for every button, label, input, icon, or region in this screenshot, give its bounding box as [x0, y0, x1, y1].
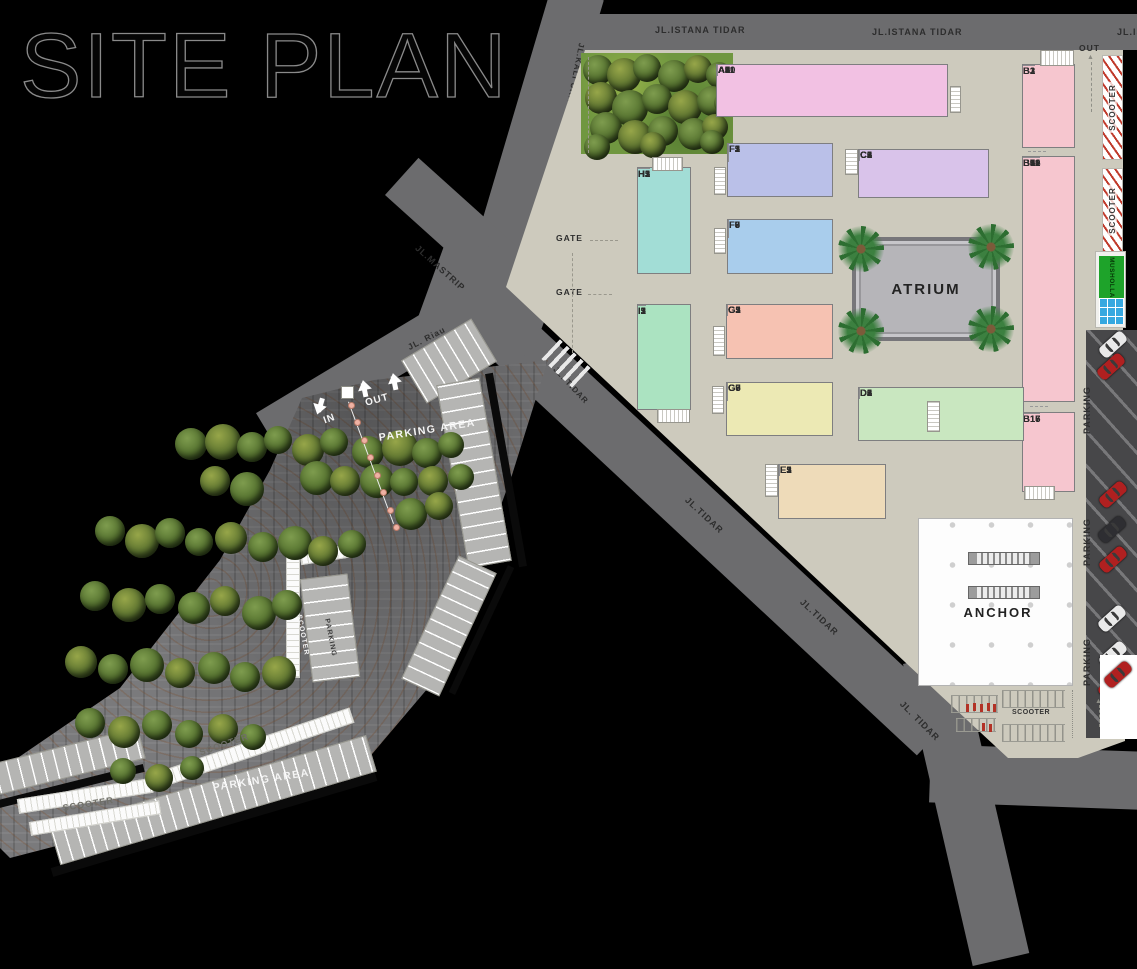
utility-box — [657, 409, 690, 423]
path-dot — [348, 402, 355, 409]
utility-box — [1024, 486, 1055, 500]
tree — [278, 526, 312, 560]
site-plan-canvas: JL.ISTANA TIDAR JL.ISTANA TIDAR JL.IS JL… — [0, 0, 1137, 969]
scooter-rack-label: SCOOTER — [1012, 709, 1050, 716]
path-dot — [393, 524, 400, 531]
palm-tree — [968, 224, 1014, 270]
gate-dash-2 — [588, 294, 612, 295]
tree — [215, 522, 247, 554]
path-dot — [354, 419, 361, 426]
tree — [180, 756, 204, 780]
utility-box — [712, 386, 724, 414]
parking-side-label: PARKING — [1082, 386, 1092, 434]
tree — [448, 464, 474, 490]
toilet-block — [1099, 298, 1124, 324]
block-a: A1A2A3A5A6A7A8A9A10A11 — [716, 64, 948, 117]
unit-cell: F5 — [728, 144, 740, 162]
block-g-bot: G6G7G8G9 — [726, 382, 833, 436]
anchor-label: ANCHOR — [938, 605, 1058, 620]
scooter-symbol — [993, 704, 996, 712]
utility-box — [1040, 50, 1074, 66]
tree — [110, 758, 136, 784]
tree — [230, 472, 264, 506]
tree — [175, 720, 203, 748]
driveway-dash-1 — [588, 57, 589, 153]
tree — [165, 658, 195, 688]
tree — [65, 646, 97, 678]
parking-side-label: PARKING — [1082, 638, 1092, 686]
block-b-top: B1B2B3 — [1022, 64, 1075, 148]
palm-tree — [968, 306, 1014, 352]
escalator — [968, 552, 1040, 565]
tree — [205, 424, 241, 460]
tree — [330, 466, 360, 496]
scooter-symbol — [982, 723, 985, 731]
palm-tree — [838, 226, 884, 272]
block-c: C1C2C3C5C6 — [858, 149, 989, 198]
tree — [125, 524, 159, 558]
tree — [248, 532, 278, 562]
unit-cell: B14 — [1023, 157, 1040, 169]
utility-box — [714, 167, 726, 195]
tree — [98, 654, 128, 684]
unit-cell: A11 — [717, 65, 735, 76]
path-dot — [361, 437, 368, 444]
escalator — [968, 586, 1040, 599]
anchor-store — [918, 518, 1073, 686]
block-b-mid: B5B6B7B8B9B10B11B12B14 — [1022, 156, 1075, 402]
unit-cell: C6 — [859, 150, 872, 161]
utility-box — [714, 228, 726, 254]
block-e: E1E2E3E5 — [778, 464, 886, 519]
unit-cell: G5 — [727, 305, 741, 316]
tree — [75, 708, 105, 738]
tree — [178, 592, 210, 624]
utility-box — [652, 157, 683, 171]
gate-label-1: GATE — [556, 233, 583, 243]
block-f-bot: F6F7F8F9 — [727, 219, 833, 274]
tree — [237, 432, 267, 462]
tree — [230, 662, 260, 692]
tree — [390, 468, 418, 496]
tree — [640, 132, 666, 158]
tree — [210, 586, 240, 616]
tree — [145, 764, 173, 792]
block-f-top: F1F2F3F5 — [727, 143, 833, 197]
utility-box — [765, 464, 778, 497]
tree — [300, 461, 334, 495]
tree — [142, 710, 172, 740]
tree — [242, 596, 276, 630]
scooter-strip-1: SCOOTER — [1102, 55, 1123, 160]
tree — [145, 584, 175, 614]
musholla-label: MUSHOLLA — [1108, 257, 1115, 298]
tree — [112, 588, 146, 622]
scooter-symbol — [989, 724, 992, 732]
scooter-symbol — [987, 703, 990, 711]
unit-cell: H5 — [638, 168, 650, 180]
tree — [264, 426, 292, 454]
block-h: H1H2H3H5 — [637, 167, 691, 274]
scooter-strip-label: SCOOTER — [1108, 82, 1117, 133]
block-b-bot: B15B16B17 — [1022, 412, 1075, 492]
utility-box — [845, 149, 858, 175]
tree — [338, 530, 366, 558]
tree — [155, 518, 185, 548]
road-label-istana-3: JL.IS — [1117, 27, 1137, 37]
road-label-istana-2: JL.ISTANA TIDAR — [872, 27, 963, 37]
b-gap-dash-2 — [1030, 406, 1048, 407]
atrium-label: ATRIUM — [891, 281, 960, 298]
tree — [633, 54, 661, 82]
scooter-strip-2: SCOOTER — [1102, 168, 1123, 252]
scooter-symbol — [966, 704, 969, 712]
tree — [185, 528, 213, 556]
tree — [262, 656, 296, 690]
tree — [200, 466, 230, 496]
tree — [175, 428, 207, 460]
path-dot — [367, 454, 374, 461]
musholla: MUSHOLLA — [1099, 256, 1124, 298]
scooter-symbol — [973, 703, 976, 711]
page-title: SITE PLAN — [20, 14, 508, 119]
scooter-rack-right — [1002, 690, 1065, 708]
tree — [108, 716, 140, 748]
entry-gate — [341, 386, 354, 399]
tree — [320, 428, 348, 456]
block-i: I1I2I3I5 — [637, 304, 691, 410]
out-label-top: OUT — [1079, 43, 1100, 53]
gate-label-2: GATE — [556, 287, 583, 297]
tree — [418, 466, 448, 496]
unit-cell: G9 — [727, 383, 741, 401]
unit-cell: E5 — [779, 465, 792, 476]
b-gap-dash-1 — [1028, 151, 1046, 152]
unit-cell: I5 — [638, 305, 646, 317]
gate-dash-1 — [590, 240, 618, 241]
unit-cell: B3 — [1023, 65, 1035, 77]
scooter-rack-right — [1002, 724, 1065, 742]
utility-box — [713, 326, 725, 356]
path-dot — [374, 472, 381, 479]
tree — [395, 498, 427, 530]
driveway-dash-2 — [572, 253, 573, 353]
scooter-symbol — [980, 704, 983, 712]
path-dot — [387, 507, 394, 514]
block-g-top: G1G2G3G5 — [726, 304, 833, 359]
apron-dotted-line — [1072, 690, 1073, 738]
tree — [700, 130, 724, 154]
tree — [438, 432, 464, 458]
out-arrow-head: ▲ — [1087, 54, 1094, 61]
tree — [95, 516, 125, 546]
scooter-strip-label: SCOOTER — [1108, 185, 1117, 236]
tree — [308, 536, 338, 566]
utility-box — [950, 86, 961, 113]
unit-cell: D6 — [859, 388, 872, 399]
palm-tree — [838, 308, 884, 354]
parking-side-label: PARKING — [1082, 518, 1092, 566]
road-label-istana-1: JL.ISTANA TIDAR — [655, 25, 746, 35]
utility-box — [927, 401, 940, 432]
out-arrow-dash — [1091, 62, 1092, 112]
tree — [130, 648, 164, 682]
unit-cell: B17 — [1023, 413, 1040, 425]
block-d: D1D2D3D5D6 — [858, 387, 1024, 441]
tree — [425, 492, 453, 520]
path-dot — [380, 489, 387, 496]
tree — [198, 652, 230, 684]
unit-cell: F9 — [728, 220, 740, 238]
tree — [80, 581, 110, 611]
